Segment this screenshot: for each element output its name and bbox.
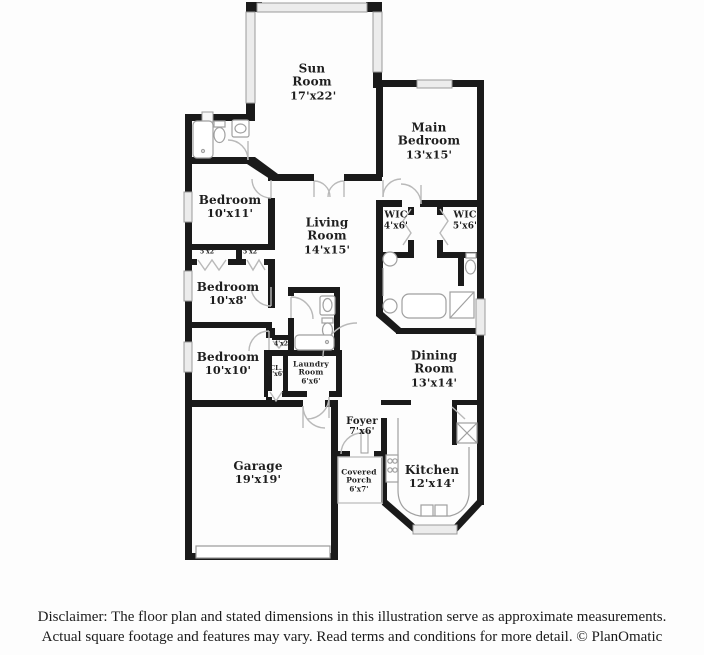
room-name: Bedroom [194, 194, 266, 207]
room-label-closet-b: 5'x2' [236, 250, 266, 257]
window [184, 271, 192, 301]
room-label-laundry-room: Laundry Room 6'x6' [291, 361, 331, 386]
room-dims: 12'x14' [396, 477, 468, 490]
toilet-tank-icon [214, 121, 225, 127]
room-name: Main Bedroom [397, 121, 461, 148]
room-label-bedroom-10x10: Bedroom 10'x10' [192, 351, 264, 377]
wall-bay-diagonal [384, 502, 416, 530]
room-dims: 5'x2' [193, 250, 223, 257]
wall [264, 350, 342, 356]
room-dims: 10'x10' [192, 364, 264, 377]
window [373, 12, 382, 72]
window [417, 80, 452, 88]
room-dims: 10'x11' [194, 207, 266, 220]
room-dims: 14'x15' [303, 243, 351, 256]
drain-icon [326, 341, 329, 344]
room-name: Covered Porch [340, 469, 378, 486]
wall [366, 2, 382, 12]
room-label-garage: Garage 19'x19' [222, 460, 294, 486]
wall-exterior-right [477, 80, 484, 505]
window [476, 299, 485, 335]
door-arc [383, 179, 401, 197]
room-name: Living Room [303, 216, 351, 243]
sink-icon [235, 124, 246, 133]
wall [268, 198, 275, 247]
room-dims: 13'x15' [397, 148, 461, 161]
window [246, 12, 255, 103]
room-label-wic-left: WIC 4'x6' [375, 211, 417, 232]
floor-plan-drawing [0, 0, 704, 608]
room-label-cl-closet: CL. 6'x6' [263, 365, 289, 379]
disclaimer-line-1: Disclaimer: The floor plan and stated di… [0, 608, 704, 628]
window [184, 192, 192, 222]
toilet-tank-icon [466, 253, 476, 258]
wall [378, 200, 402, 207]
wall-bay-diagonal [454, 502, 480, 530]
wall [376, 87, 383, 177]
bifold-door [198, 260, 226, 270]
room-dims: 7'x6' [336, 427, 388, 438]
wall-exterior-left [185, 114, 192, 560]
room-dims: 6'x6' [291, 377, 331, 385]
room-dims: 17'x22' [290, 89, 334, 102]
window [257, 3, 367, 12]
wall [381, 400, 411, 405]
wall [185, 322, 272, 328]
room-dims: 4'x6' [375, 221, 417, 231]
wall [336, 356, 342, 397]
window-bay [413, 525, 457, 534]
room-label-kitchen: Kitchen 12'x14' [396, 464, 468, 490]
room-name: Sun Room [290, 62, 334, 89]
room-dims: 5'x2' [236, 250, 266, 257]
sink-icon [383, 252, 397, 266]
room-name: Dining Room [410, 349, 458, 376]
disclaimer-line-2: Actual square footage and features may v… [0, 628, 704, 648]
toilet-icon [214, 128, 225, 143]
room-label-bedroom-10x8: Bedroom 10'x8' [192, 281, 264, 307]
sink-icon [323, 299, 332, 312]
room-dims: 6'x6' [263, 372, 289, 379]
room-name: WIC [444, 211, 486, 222]
wall [452, 400, 484, 405]
sink-icon [383, 299, 397, 313]
room-name: Kitchen [396, 464, 468, 477]
room-dims: 5'x6' [444, 221, 486, 231]
bathtub-icon [402, 294, 446, 318]
room-dims: 13'x14' [410, 376, 458, 389]
window [184, 342, 192, 372]
wall [376, 258, 383, 312]
room-name: Laundry Room [291, 361, 331, 378]
wall [420, 200, 484, 207]
room-name: WIC [375, 211, 417, 222]
wall [228, 259, 246, 265]
garage-door [196, 546, 330, 558]
wall [378, 80, 418, 87]
room-name: Bedroom [192, 351, 264, 364]
room-label-closet-4x2: 4'x2' [267, 342, 297, 349]
room-label-main-bedroom: Main Bedroom 13'x15' [397, 121, 461, 161]
room-name: Bedroom [192, 281, 264, 294]
wall [288, 287, 340, 293]
wall [264, 259, 275, 265]
room-label-dining-room: Dining Room 13'x14' [410, 349, 458, 389]
kitchen-sink-icon [435, 505, 447, 516]
room-dims: 10'x8' [192, 294, 264, 307]
room-dims: 4'x2' [267, 342, 297, 349]
room-label-living-room: Living Room 14'x15' [303, 216, 351, 256]
bifold-door [247, 260, 265, 270]
room-dims: 19'x19' [222, 473, 294, 486]
wall [458, 258, 464, 286]
room-name: Garage [222, 460, 294, 473]
room-label-wic-right: WIC 5'x6' [444, 211, 486, 232]
door-arc [401, 184, 421, 204]
wall [185, 259, 197, 265]
disclaimer: Disclaimer: The floor plan and stated di… [0, 608, 704, 648]
wall [437, 252, 484, 258]
kitchen-sink-icon [421, 505, 433, 516]
door-arc [303, 406, 325, 428]
toilet-icon [466, 260, 476, 274]
room-label-bedroom-10x11: Bedroom 10'x11' [194, 194, 266, 220]
drain-icon [202, 150, 205, 153]
wall [396, 328, 479, 334]
floor-plan-page: Sun Room 17'x22' Main Bedroom 13'x15' Be… [0, 0, 704, 655]
room-dims: 6'x7' [340, 485, 378, 493]
door-arc [291, 297, 313, 319]
room-label-foyer: Foyer 7'x6' [336, 416, 388, 438]
room-label-sun-room: Sun Room 17'x22' [290, 62, 334, 102]
toilet-tank-icon [322, 318, 333, 323]
room-label-closet-a: 5'x2' [193, 250, 223, 257]
wall [268, 174, 314, 181]
room-label-covered-porch: Covered Porch 6'x7' [340, 469, 378, 494]
